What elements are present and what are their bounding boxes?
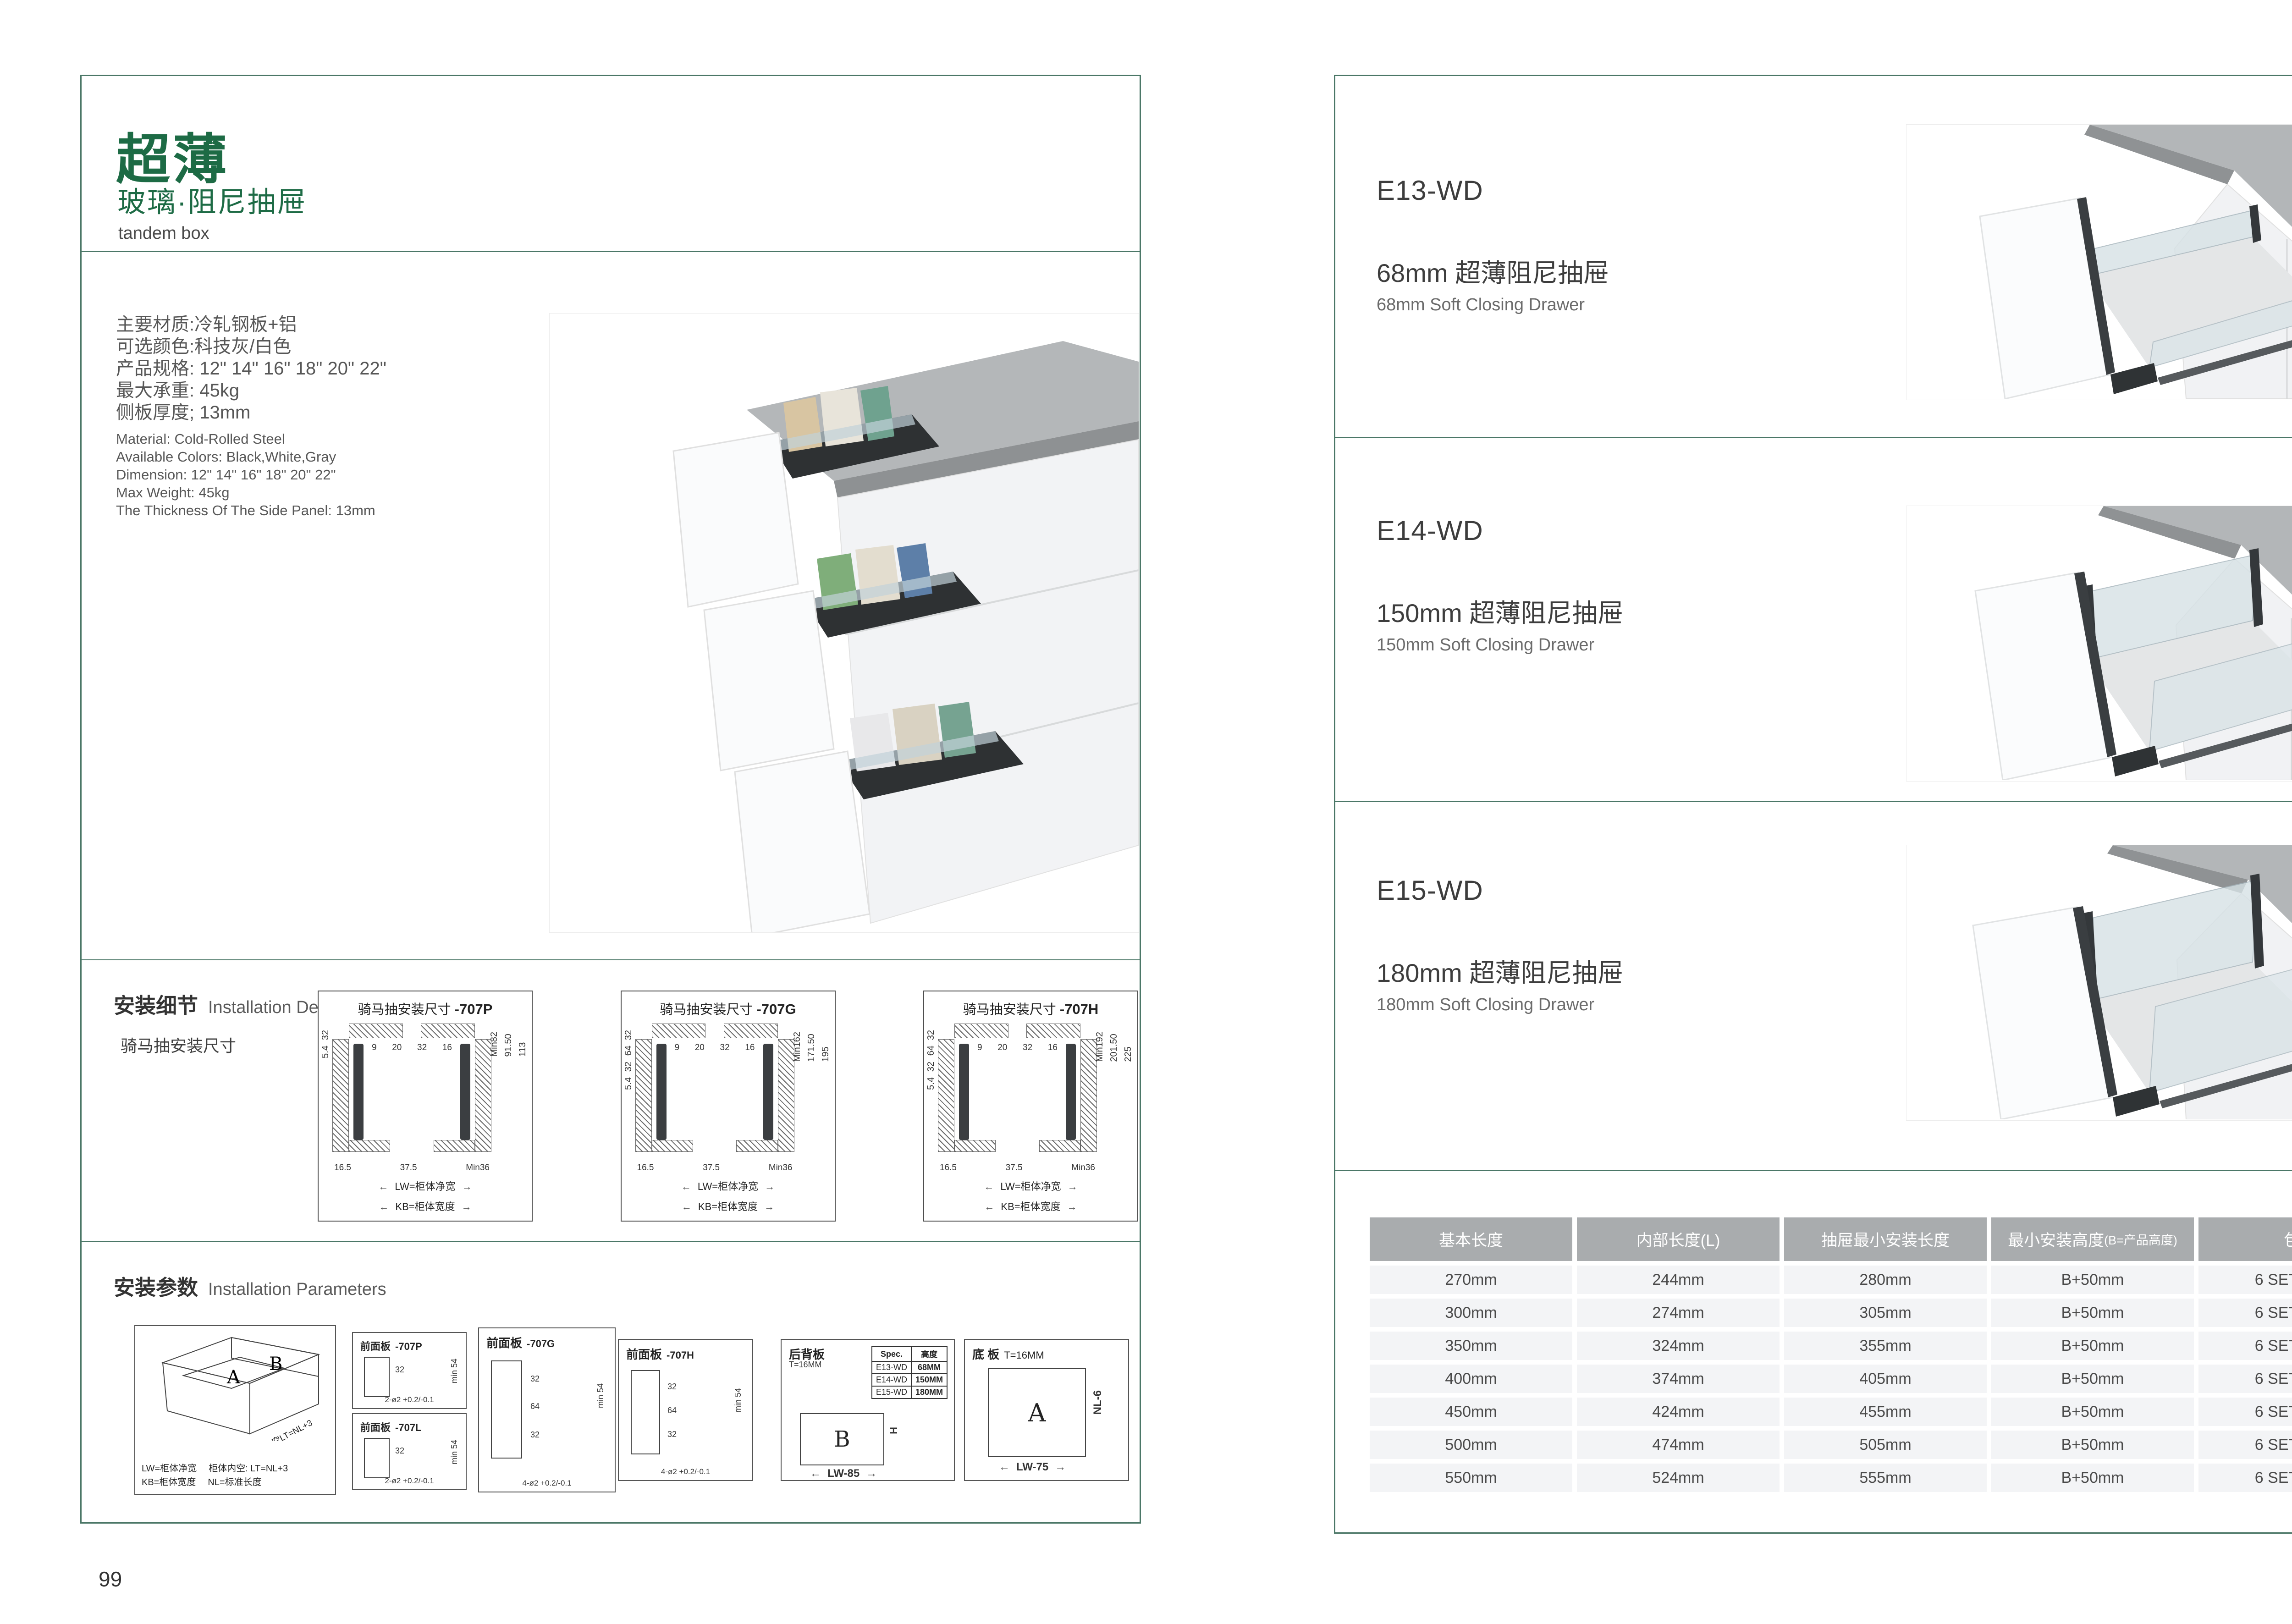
cell-min-install-height: B+50mm (1991, 1266, 2194, 1294)
panel-shape (364, 1438, 390, 1478)
specs-en: Material: Cold-Rolled SteelAvailable Col… (116, 430, 375, 519)
hatched-bottom (736, 1140, 777, 1152)
svg-text:B: B (269, 1354, 282, 1375)
cell-min-install-length: 455mm (1784, 1398, 1987, 1426)
cell-packing: 6 SETC/TNB (2198, 1365, 2292, 1393)
page-subtitle: 玻璃·阻尼抽屉 (117, 179, 307, 220)
left-page-panel: 超薄 玻璃·阻尼抽屉 tandem box 主要材质:冷轧钢板+铝可选颜色:科技… (80, 75, 1141, 1524)
cell-min-install-length: 280mm (1784, 1266, 1987, 1294)
separator (82, 1241, 1140, 1242)
drawer-illustration-150mm (1906, 506, 2292, 780)
cell-min-install-height: B+50mm (1991, 1332, 2194, 1360)
diagram-drawing: 9203216 (635, 1024, 794, 1152)
bottom-dimensions: 16.537.5Min36 (334, 1163, 490, 1173)
width-label-kb: KB=柜体宽度 (319, 1199, 532, 1213)
iso-legend: LW=柜体净宽柜体内空: LT=NL+3 KB=柜体宽度NL=标准长度 (142, 1462, 300, 1489)
installation-diagram: 骑马抽安装尺寸 -707G 9203216 (621, 991, 836, 1222)
hole-spec: 4-ø2 +0.2/-0.1 (619, 1467, 752, 1476)
product-name-en: 150mm Soft Closing Drawer (1377, 635, 1594, 655)
cell-basic-length: 350mm (1370, 1332, 1572, 1360)
cell-min-install-height: B+50mm (1991, 1431, 2194, 1459)
param-front-707h: 前面板-707H 32 64 32 min 54 4-ø2 +0.2/-0.1 (618, 1339, 753, 1481)
inner-dimensions: 9203216 (977, 1043, 1058, 1053)
width-label-lw: LW=柜体净宽 (622, 1178, 835, 1193)
diagram-title: 骑马抽安装尺寸 -707H (924, 999, 1137, 1018)
cell-min-install-height: B+50mm (1991, 1299, 2194, 1327)
product-name-cn: 180mm 超薄阻尼抽屉 (1377, 952, 1623, 990)
width-label-kb: KB=柜体宽度 (622, 1199, 835, 1213)
hatched-bottom (652, 1140, 693, 1152)
main-product-photo (549, 313, 1139, 933)
left-dimensions: 3264325.4 (623, 1030, 634, 1090)
diagram-drawing: 9203216 (938, 1024, 1097, 1152)
product-photo-e14 (1906, 506, 2292, 782)
bottom-panel-shape: A (988, 1368, 1086, 1457)
hatched-wall (332, 1039, 349, 1152)
cell-basic-length: 500mm (1370, 1431, 1572, 1459)
param-back-panel: 后背板 T=16MM Spec.高度 E13-WD68MM E14-WD150M… (781, 1339, 955, 1481)
spec-line: 主要材质:冷轧钢板+铝 (116, 314, 386, 336)
separator (82, 959, 1140, 960)
table-header-min-install-height: 最小安装高度(B=产品高度) (1991, 1217, 2194, 1261)
hatched-wall (938, 1039, 954, 1152)
cell-min-install-height: B+50mm (1991, 1464, 2194, 1492)
panel-shape (364, 1357, 390, 1397)
cell-min-install-length: 355mm (1784, 1332, 1987, 1360)
cell-inner-length: 274mm (1577, 1299, 1780, 1327)
cabinet-drawers-illustration (550, 314, 1139, 932)
cell-packing: 6 SETC/TNB (2198, 1431, 2292, 1459)
drawer-illustration-180mm (1906, 845, 2292, 1119)
right-dimensions: Min8291.50113 (489, 1032, 528, 1057)
spec-line: Available Colors: Black,White,Gray (116, 448, 375, 466)
hole-spec: 4-ø2 +0.2/-0.1 (479, 1479, 615, 1488)
cell-packing: 6 SETC/TNB (2198, 1299, 2292, 1327)
hatched-top (421, 1024, 475, 1038)
hole-spec: 2-ø2 +0.2/-0.1 (353, 1476, 466, 1486)
diagram-drawing: 9203216 (332, 1024, 491, 1152)
cell-min-install-height: B+50mm (1991, 1398, 2194, 1426)
cell-inner-length: 424mm (1577, 1398, 1780, 1426)
back-panel-shape: B (800, 1413, 884, 1465)
right-dimensions: Min192201.50225 (1095, 1032, 1134, 1062)
param-iso-box: B A 柜体内空LT=NL+3 LW=柜体净宽柜体内空: LT=NL+3 KB=… (134, 1325, 336, 1495)
svg-text:A: A (226, 1367, 241, 1388)
cell-basic-length: 270mm (1370, 1266, 1572, 1294)
hatched-bottom (434, 1140, 475, 1152)
table-header-min-install-length: 抽屉最小安装长度 (1784, 1217, 1987, 1261)
product-section-e14: E14-WD 150mm 超薄阻尼抽屉 150mm Soft Closing D… (1335, 437, 2292, 801)
hatched-top (652, 1024, 706, 1038)
diagram-title: 骑马抽安装尺寸 -707P (319, 999, 532, 1018)
install-details-heading: 安装细节Installation Details (114, 989, 349, 1019)
heading-cn: 安装参数 (114, 1276, 198, 1299)
cell-min-install-length: 505mm (1784, 1431, 1987, 1459)
panel-shape (631, 1370, 660, 1454)
cell-inner-length: 374mm (1577, 1365, 1780, 1393)
bottom-dimensions: 16.537.5Min36 (940, 1163, 1095, 1173)
table-header-packing: 包装 (2198, 1217, 2292, 1261)
category-label: tandem box (118, 224, 209, 243)
cell-inner-length: 524mm (1577, 1464, 1780, 1492)
cell-min-install-length: 555mm (1784, 1464, 1987, 1492)
hatched-top (1026, 1024, 1080, 1038)
product-photo-e15 (1906, 845, 2292, 1121)
install-details-sublabel: 骑马抽安装尺寸 (121, 1033, 236, 1057)
panel-shape (491, 1360, 522, 1459)
cell-inner-length: 324mm (1577, 1332, 1780, 1360)
width-label-lw: LW=柜体净宽 (924, 1178, 1137, 1193)
left-dimensions: 325.4 (320, 1030, 331, 1069)
spec-line: Dimension: 12" 14" 16" 18" 20" 22" (116, 466, 375, 484)
spec-line: 可选颜色:科技灰/白色 (116, 336, 386, 358)
runner-profile (959, 1044, 969, 1140)
cell-min-install-length: 305mm (1784, 1299, 1987, 1327)
hatched-top (349, 1024, 403, 1038)
cell-min-install-length: 405mm (1784, 1365, 1987, 1393)
product-code: E13-WD (1377, 175, 1483, 206)
cell-packing: 6 SETC/TNB (2198, 1398, 2292, 1426)
right-page-panel: E13-WD 68mm 超薄阻尼抽屉 68mm Soft Closing Dra… (1334, 75, 2292, 1534)
hatched-bottom (954, 1140, 996, 1152)
inner-dimensions: 9203216 (675, 1043, 755, 1053)
cell-basic-length: 550mm (1370, 1464, 1572, 1492)
page-number-left: 99 (99, 1567, 122, 1591)
cabinet-iso-wireframe: B A 柜体内空LT=NL+3 (135, 1326, 335, 1441)
width-label-kb: KB=柜体宽度 (924, 1199, 1137, 1213)
hatched-top (954, 1024, 1008, 1038)
runner-profile (460, 1044, 470, 1140)
param-bottom-panel: 底 板T=16MM A NL-6 LW-75 (964, 1339, 1129, 1481)
product-name-cn: 150mm 超薄阻尼抽屉 (1377, 593, 1623, 630)
spec-line: Material: Cold-Rolled Steel (116, 430, 375, 448)
size-table: 基本长度 内部长度(L) 抽屉最小安装长度 最小安装高度(B=产品高度) 包装 … (1370, 1217, 2292, 1492)
hole-spec: 2-ø2 +0.2/-0.1 (353, 1395, 466, 1404)
spec-line: 侧板厚度; 13mm (116, 402, 386, 424)
specs-cn: 主要材质:冷轧钢板+铝可选颜色:科技灰/白色产品规格: 12" 14" 16" … (116, 314, 386, 424)
product-section-e13: E13-WD 68mm 超薄阻尼抽屉 68mm Soft Closing Dra… (1335, 76, 2292, 437)
spec-line: 最大承重: 45kg (116, 380, 386, 402)
param-front-707p: 前面板-707P 32 min 54 2-ø2 +0.2/-0.1 (352, 1332, 467, 1409)
catalog-spread: 超薄 玻璃·阻尼抽屉 tandem box 主要材质:冷轧钢板+铝可选颜色:科技… (0, 0, 2292, 1624)
runner-profile (656, 1044, 667, 1140)
cell-basic-length: 400mm (1370, 1365, 1572, 1393)
width-label-lw: LW=柜体净宽 (319, 1178, 532, 1193)
product-name-cn: 68mm 超薄阻尼抽屉 (1377, 253, 1609, 290)
heading-cn: 安装细节 (114, 994, 198, 1018)
param-front-707l: 前面板-707L 32 min 54 2-ø2 +0.2/-0.1 (352, 1413, 467, 1490)
cell-packing: 6 SETC/TNB (2198, 1464, 2292, 1492)
heading-en: Installation Parameters (208, 1280, 386, 1299)
product-name-en: 180mm Soft Closing Drawer (1377, 995, 1594, 1015)
product-name-en: 68mm Soft Closing Drawer (1377, 295, 1585, 315)
table-header-inner-length: 内部长度(L) (1577, 1217, 1780, 1261)
inner-dimensions: 9203216 (372, 1043, 452, 1053)
hatched-wall (635, 1039, 652, 1152)
hatched-top (724, 1024, 778, 1038)
runner-profile (1066, 1044, 1076, 1140)
cell-packing: 6 SETC/TNB (2198, 1266, 2292, 1294)
cell-inner-length: 474mm (1577, 1431, 1780, 1459)
installation-detail-diagrams: 骑马抽安装尺寸 -707P 9203216 (318, 991, 1138, 1222)
diagram-title: 骑马抽安装尺寸 -707G (622, 999, 835, 1018)
separator (1335, 1170, 2292, 1171)
cell-packing: 6 SETC/TNB (2198, 1332, 2292, 1360)
param-front-707g: 前面板-707G 32 64 32 min 54 4-ø2 +0.2/-0.1 (478, 1327, 616, 1492)
svg-text:柜体内空LT=NL+3: 柜体内空LT=NL+3 (247, 1418, 314, 1441)
left-dimensions: 3264325.4 (926, 1030, 937, 1090)
runner-profile (763, 1044, 773, 1140)
spec-line: The Thickness Of The Side Panel: 13mm (116, 501, 375, 519)
cell-inner-length: 244mm (1577, 1266, 1780, 1294)
cell-basic-length: 450mm (1370, 1398, 1572, 1426)
hatched-bottom (1039, 1140, 1080, 1152)
right-dimensions: Min162171.50195 (792, 1032, 831, 1062)
hatched-bottom (349, 1140, 390, 1152)
product-photo-e13 (1906, 124, 2292, 400)
spec-line: 产品规格: 12" 14" 16" 18" 20" 22" (116, 358, 386, 380)
spec-line: Max Weight: 45kg (116, 484, 375, 501)
cell-basic-length: 300mm (1370, 1299, 1572, 1327)
separator (82, 251, 1140, 252)
install-params-heading: 安装参数Installation Parameters (114, 1271, 386, 1301)
product-code: E15-WD (1377, 875, 1483, 906)
runner-profile (353, 1044, 364, 1140)
cell-min-install-height: B+50mm (1991, 1365, 2194, 1393)
bottom-dimensions: 16.537.5Min36 (637, 1163, 793, 1173)
table-header-basic-length: 基本长度 (1370, 1217, 1572, 1261)
installation-diagram: 骑马抽安装尺寸 -707H 9203216 (923, 991, 1138, 1222)
drawer-illustration-68mm (1906, 125, 2292, 399)
installation-diagram: 骑马抽安装尺寸 -707P 9203216 (318, 991, 533, 1222)
product-section-e15: E15-WD 180mm 超薄阻尼抽屉 180mm Soft Closing D… (1335, 801, 2292, 1170)
back-panel-spec-table: Spec.高度 E13-WD68MM E14-WD150MM E15-WD180… (871, 1346, 948, 1399)
product-code: E14-WD (1377, 515, 1483, 546)
